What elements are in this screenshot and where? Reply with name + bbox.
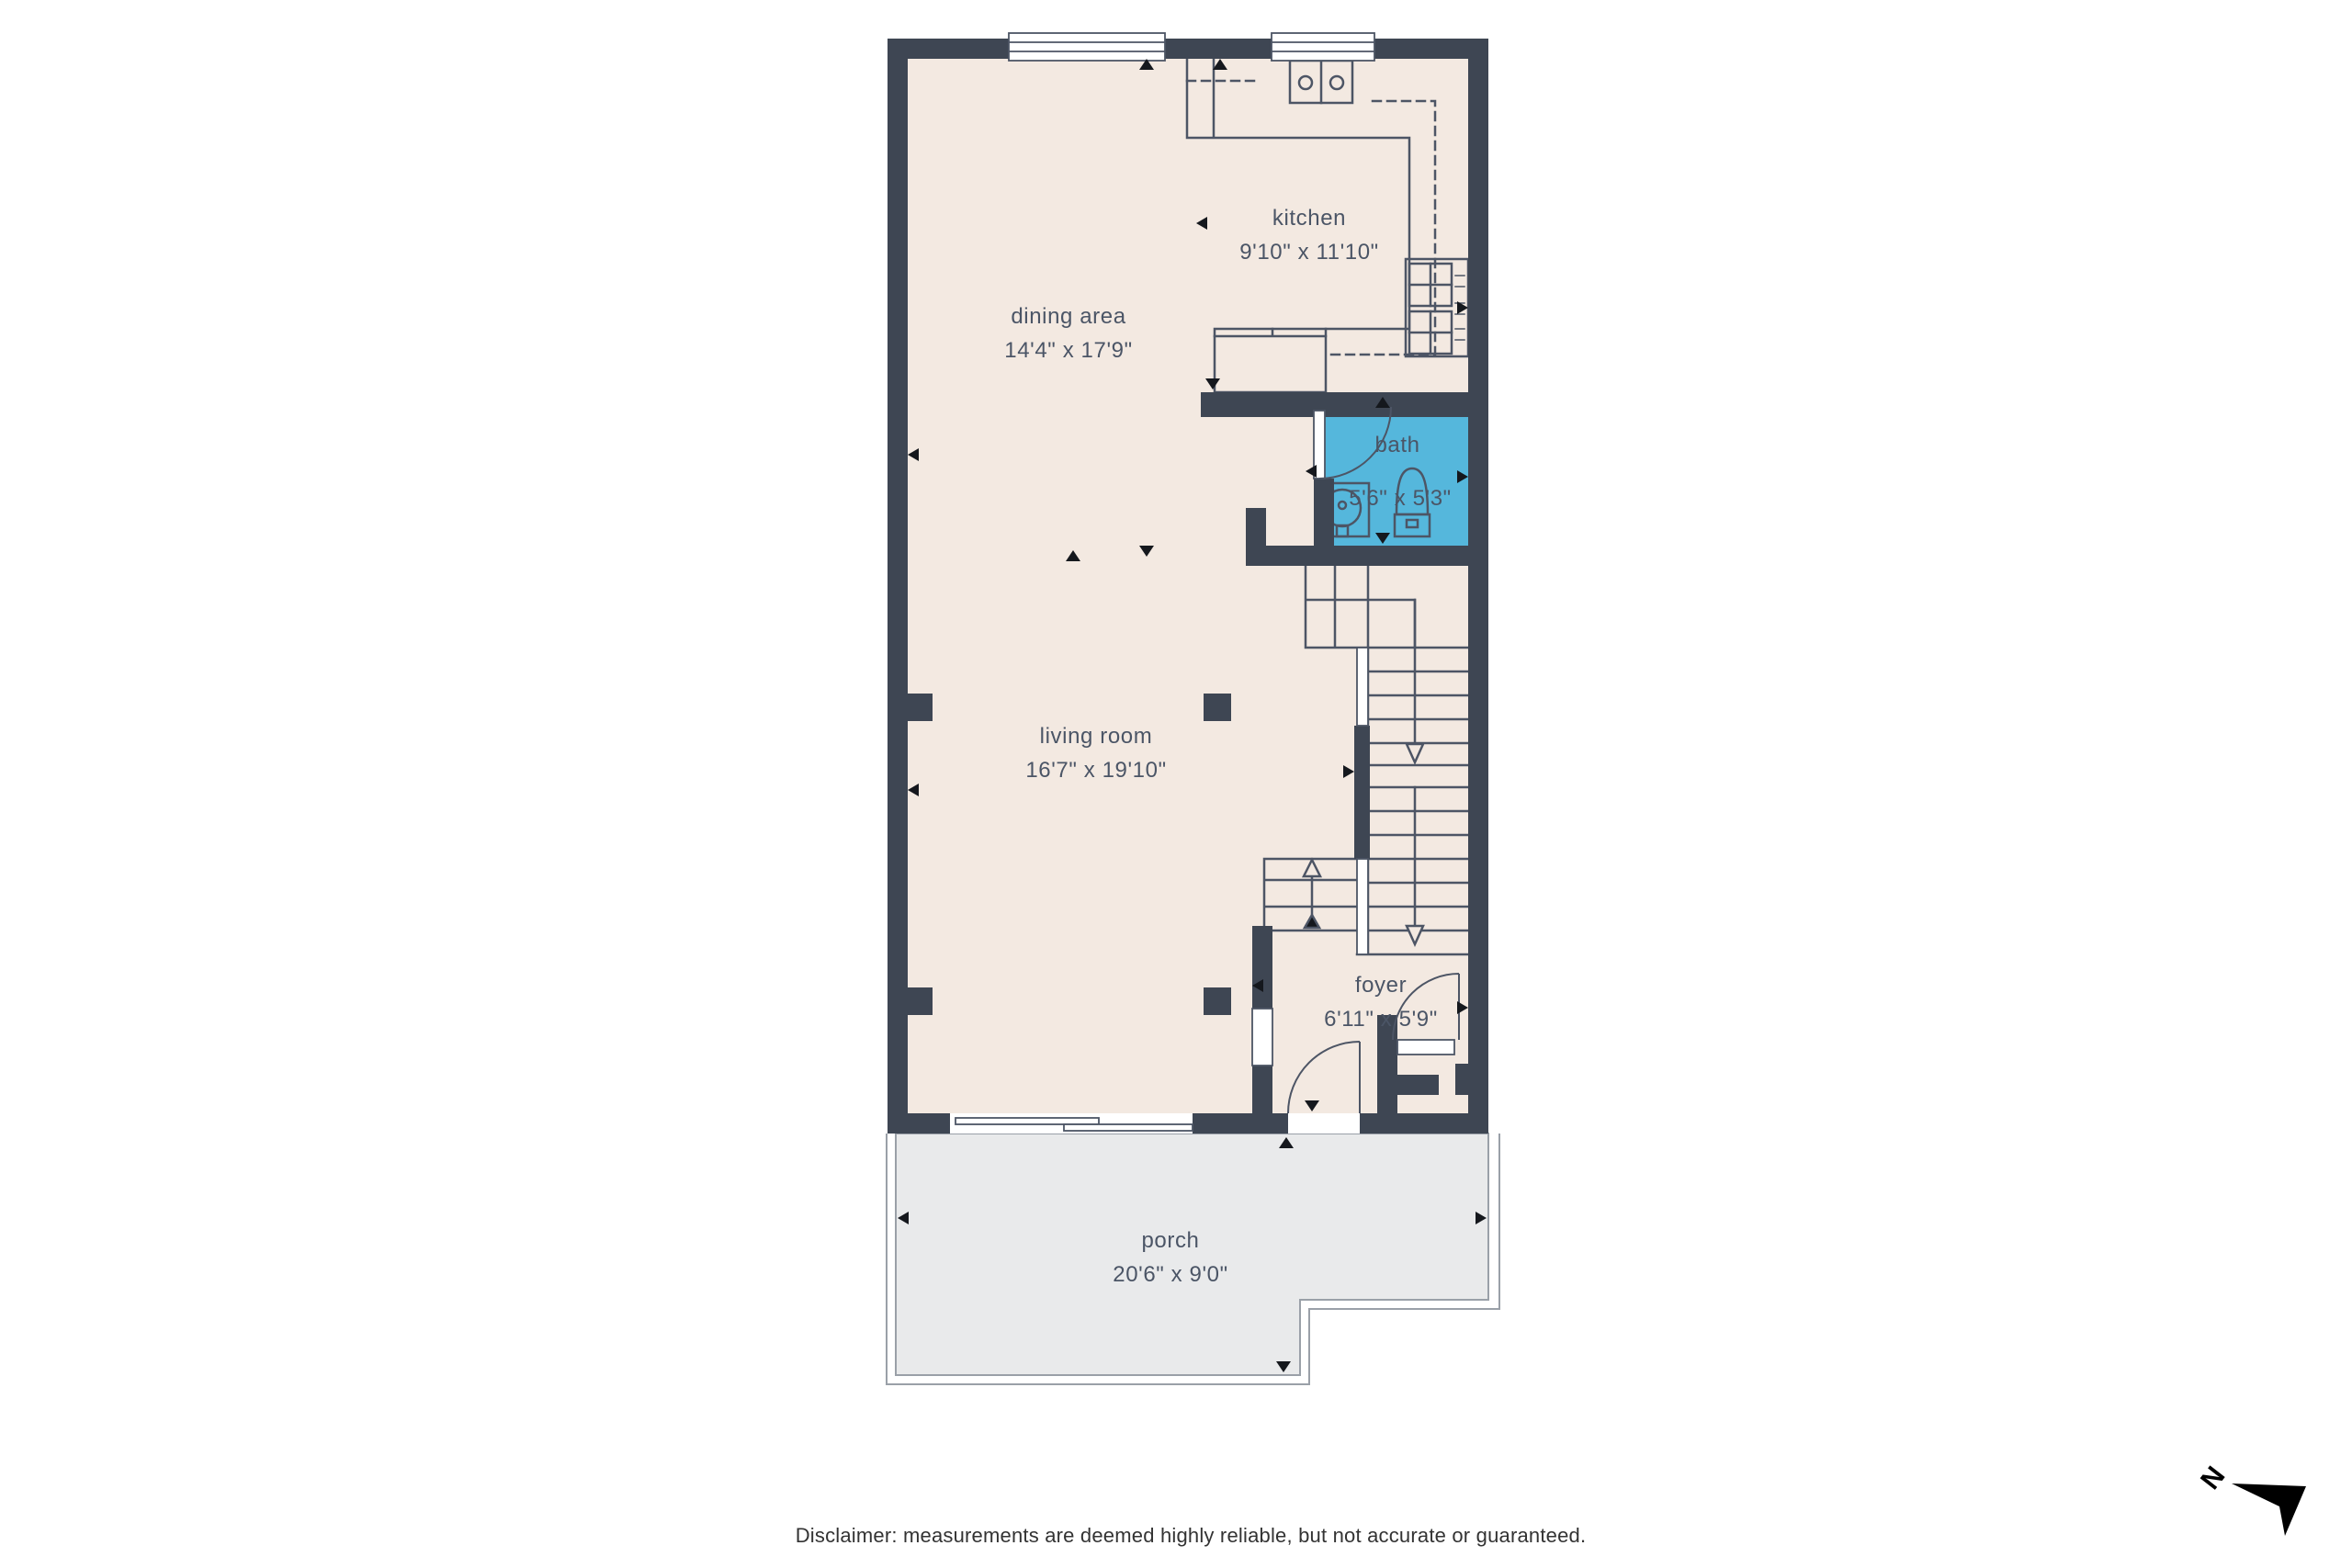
front-door-opening: [1288, 1113, 1360, 1134]
closet-shelf: [1397, 1040, 1454, 1055]
wall-bottom-2: [1193, 1113, 1288, 1134]
room-name-living: living room: [1040, 724, 1153, 749]
disclaimer-text: Disclaimer: measurements are deemed high…: [796, 1524, 1587, 1547]
room-dims-bath: 5'6" x 5'3": [1349, 486, 1452, 511]
room-name-porch: porch: [1141, 1228, 1199, 1253]
compass-needle-icon: [2232, 1483, 2306, 1536]
wall-left: [888, 39, 908, 1134]
wall-stair-rail: [1354, 726, 1370, 859]
porch-area: [887, 1134, 1499, 1384]
cased-opening: [1252, 1009, 1272, 1066]
room-dims-dining: 14'4" x 17'9": [1004, 338, 1132, 363]
sliding-door-panel-2: [1064, 1124, 1193, 1131]
room-name-dining: dining area: [1011, 304, 1125, 329]
column: [905, 987, 933, 1015]
column: [905, 694, 933, 721]
compass-north-label: N: [2195, 1461, 2231, 1495]
window-2: [1272, 33, 1374, 61]
wall-closet-bottom: [1397, 1075, 1439, 1095]
room-dims-foyer: 6'11" x 5'9": [1324, 1007, 1438, 1032]
room-name-foyer: foyer: [1355, 973, 1407, 998]
wall-bath-left: [1314, 479, 1334, 547]
wall-top: [888, 39, 1488, 59]
room-name-bath: bath: [1374, 433, 1419, 457]
column: [1204, 987, 1231, 1015]
wall-bottom-1: [888, 1113, 950, 1134]
wall-bottom-3: [1360, 1113, 1488, 1134]
stair-railing-lower: [1357, 859, 1368, 954]
wall-bath-return: [1246, 508, 1266, 546]
floorplan-canvas: kitchen 9'10" x 11'10" dining area 14'4"…: [0, 0, 2352, 1568]
porch-deck: [896, 1134, 1488, 1375]
wall-right: [1468, 39, 1488, 1134]
column: [1204, 694, 1231, 721]
stair-railing-upper: [1357, 648, 1368, 726]
room-dims-kitchen: 9'10" x 11'10": [1239, 240, 1379, 265]
compass: N: [2195, 1461, 2306, 1536]
wall-kitchen-bath: [1201, 392, 1488, 417]
room-name-kitchen: kitchen: [1272, 206, 1346, 231]
wall-closet-corner: [1455, 1064, 1488, 1095]
room-dims-porch: 20'6" x 9'0": [1113, 1262, 1227, 1287]
room-dims-living: 16'7" x 19'10": [1025, 758, 1166, 783]
sliding-door-panel-1: [955, 1118, 1099, 1124]
window-1: [1009, 33, 1165, 61]
wall-bath-bottom: [1246, 546, 1488, 566]
